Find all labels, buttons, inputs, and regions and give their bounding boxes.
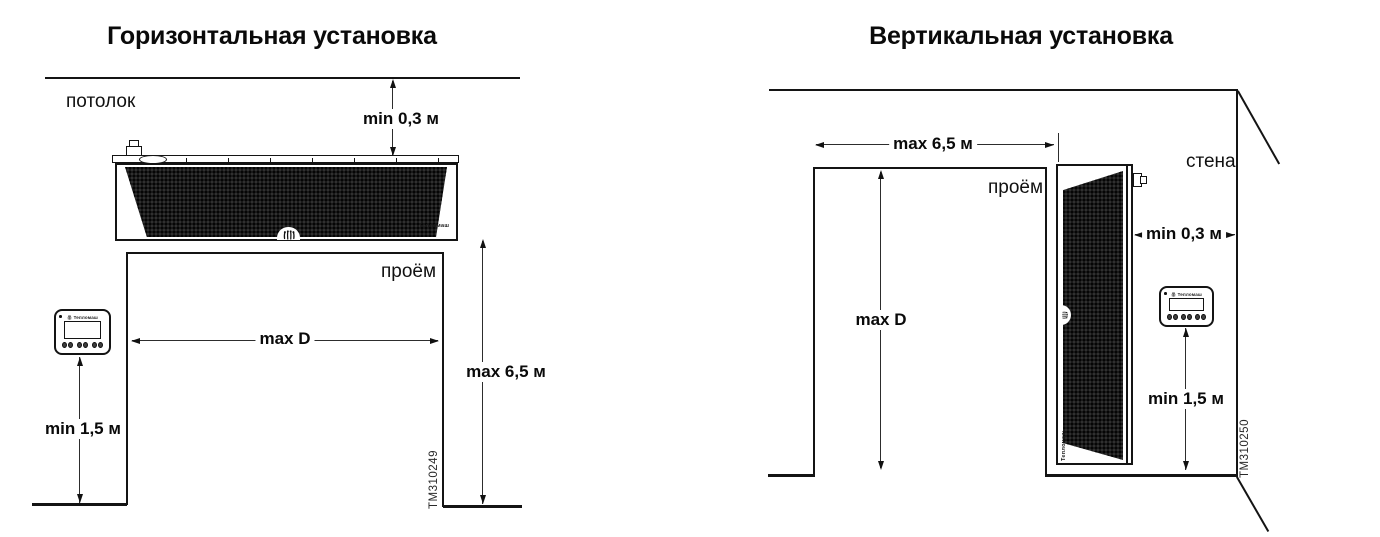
- dim-extension-line: [1058, 133, 1059, 162]
- unit-back-panel-line: [1126, 165, 1128, 464]
- arrowhead-up-icon: [1183, 328, 1189, 337]
- wall-top-line: [769, 89, 1238, 91]
- horizontal-title: Горизонтальная установка: [107, 22, 437, 51]
- dim-label-opening-width: max D: [255, 329, 314, 349]
- drawing-number: TM310249: [428, 450, 440, 509]
- arrowhead-right-icon: [1226, 232, 1235, 238]
- controller-button-icon: [68, 342, 73, 349]
- arrowhead-down-icon: [480, 495, 486, 504]
- mounting-bracket-icon: [139, 155, 167, 164]
- arrowhead-right-icon: [430, 338, 439, 344]
- wall-corner-diagonal-top: [1237, 90, 1280, 164]
- floor-line-left: [768, 474, 815, 477]
- doorway-right-line: [1045, 167, 1047, 477]
- doorway-left-line: [813, 167, 815, 477]
- dim-label-opening-height: max D: [851, 310, 910, 330]
- led-indicator-icon: [59, 315, 62, 318]
- brand-fan-icon: [67, 315, 72, 320]
- arrowhead-down-icon: [878, 461, 884, 470]
- fan-logo-icon: [1057, 310, 1073, 320]
- controller-button-icon: [77, 342, 82, 349]
- arrowhead-up-icon: [480, 239, 486, 248]
- controller-button-icon: [1195, 314, 1200, 321]
- unit-brand-label: Тепломаш: [1061, 431, 1067, 461]
- wall-controller: Тепломаш: [1159, 286, 1214, 327]
- controller-button-icon: [1167, 314, 1172, 321]
- controller-button-icon: [1187, 314, 1192, 321]
- arrowhead-left-icon: [815, 142, 824, 148]
- controller-brand-label: Тепломаш: [1178, 292, 1202, 297]
- dim-label-controller-height: min 1,5 м: [41, 419, 125, 439]
- controller-header: Тепломаш: [1166, 290, 1207, 298]
- wall-label: стена: [1186, 151, 1236, 173]
- arrowhead-right-icon: [1045, 142, 1054, 148]
- floor-line-right: [443, 505, 522, 508]
- controller-buttons: [1166, 312, 1207, 322]
- doorway-left-line: [126, 252, 128, 505]
- wall-vertical-line: [1236, 89, 1238, 477]
- controller-screen: [64, 321, 101, 339]
- controller-button-icon: [98, 342, 103, 349]
- opening-label: проём: [381, 261, 436, 283]
- dim-label-controller-height: min 1,5 м: [1144, 389, 1228, 409]
- controller-button-icon: [83, 342, 88, 349]
- opening-label: проём: [988, 177, 1043, 199]
- floor-line-right: [1046, 474, 1238, 477]
- arrowhead-up-icon: [77, 357, 83, 366]
- led-indicator-icon: [1164, 292, 1167, 295]
- wall-corner-diagonal-bottom: [1236, 476, 1269, 531]
- arrowhead-up-icon: [390, 79, 396, 88]
- arrowhead-up-icon: [878, 170, 884, 179]
- cable-gland-icon: [1140, 176, 1147, 184]
- controller-screen: [1169, 298, 1204, 311]
- controller-buttons: [61, 340, 104, 350]
- installation-diagrams: Горизонтальная установка потолок min 0,3…: [0, 0, 1380, 537]
- vertical-title: Вертикальная установка: [869, 22, 1173, 51]
- arrowhead-down-icon: [390, 147, 396, 156]
- controller-header: Тепломаш: [61, 313, 104, 321]
- controller-button-icon: [62, 342, 67, 349]
- ceiling-line: [45, 77, 520, 79]
- doorway-top-line: [127, 252, 443, 254]
- controller-brand-label: Тепломаш: [74, 315, 98, 320]
- dim-label-opening-width: max 6,5 м: [889, 134, 977, 154]
- arrowhead-down-icon: [1183, 461, 1189, 470]
- fan-logo-icon: [281, 230, 297, 240]
- arrowhead-left-icon: [131, 338, 140, 344]
- doorway-top-line: [814, 167, 1047, 169]
- controller-button-icon: [92, 342, 97, 349]
- dim-label-wall-clearance: min 0,3 м: [1142, 224, 1226, 244]
- arrowhead-down-icon: [77, 494, 83, 503]
- controller-button-icon: [1201, 314, 1206, 321]
- controller-button-icon: [1181, 314, 1186, 321]
- ceiling-label: потолок: [66, 91, 135, 113]
- controller-button-icon: [1173, 314, 1178, 321]
- drawing-number: TM310250: [1239, 419, 1251, 478]
- floor-line-left: [32, 503, 127, 506]
- dim-label-ceiling-clearance: min 0,3 м: [359, 109, 443, 129]
- unit-brand-label: Тепломаш: [419, 223, 449, 229]
- brand-fan-icon: [1171, 292, 1176, 297]
- dim-label-opening-height: max 6,5 м: [462, 362, 550, 382]
- doorway-right-line: [442, 252, 444, 507]
- wall-controller: Тепломаш: [54, 309, 111, 355]
